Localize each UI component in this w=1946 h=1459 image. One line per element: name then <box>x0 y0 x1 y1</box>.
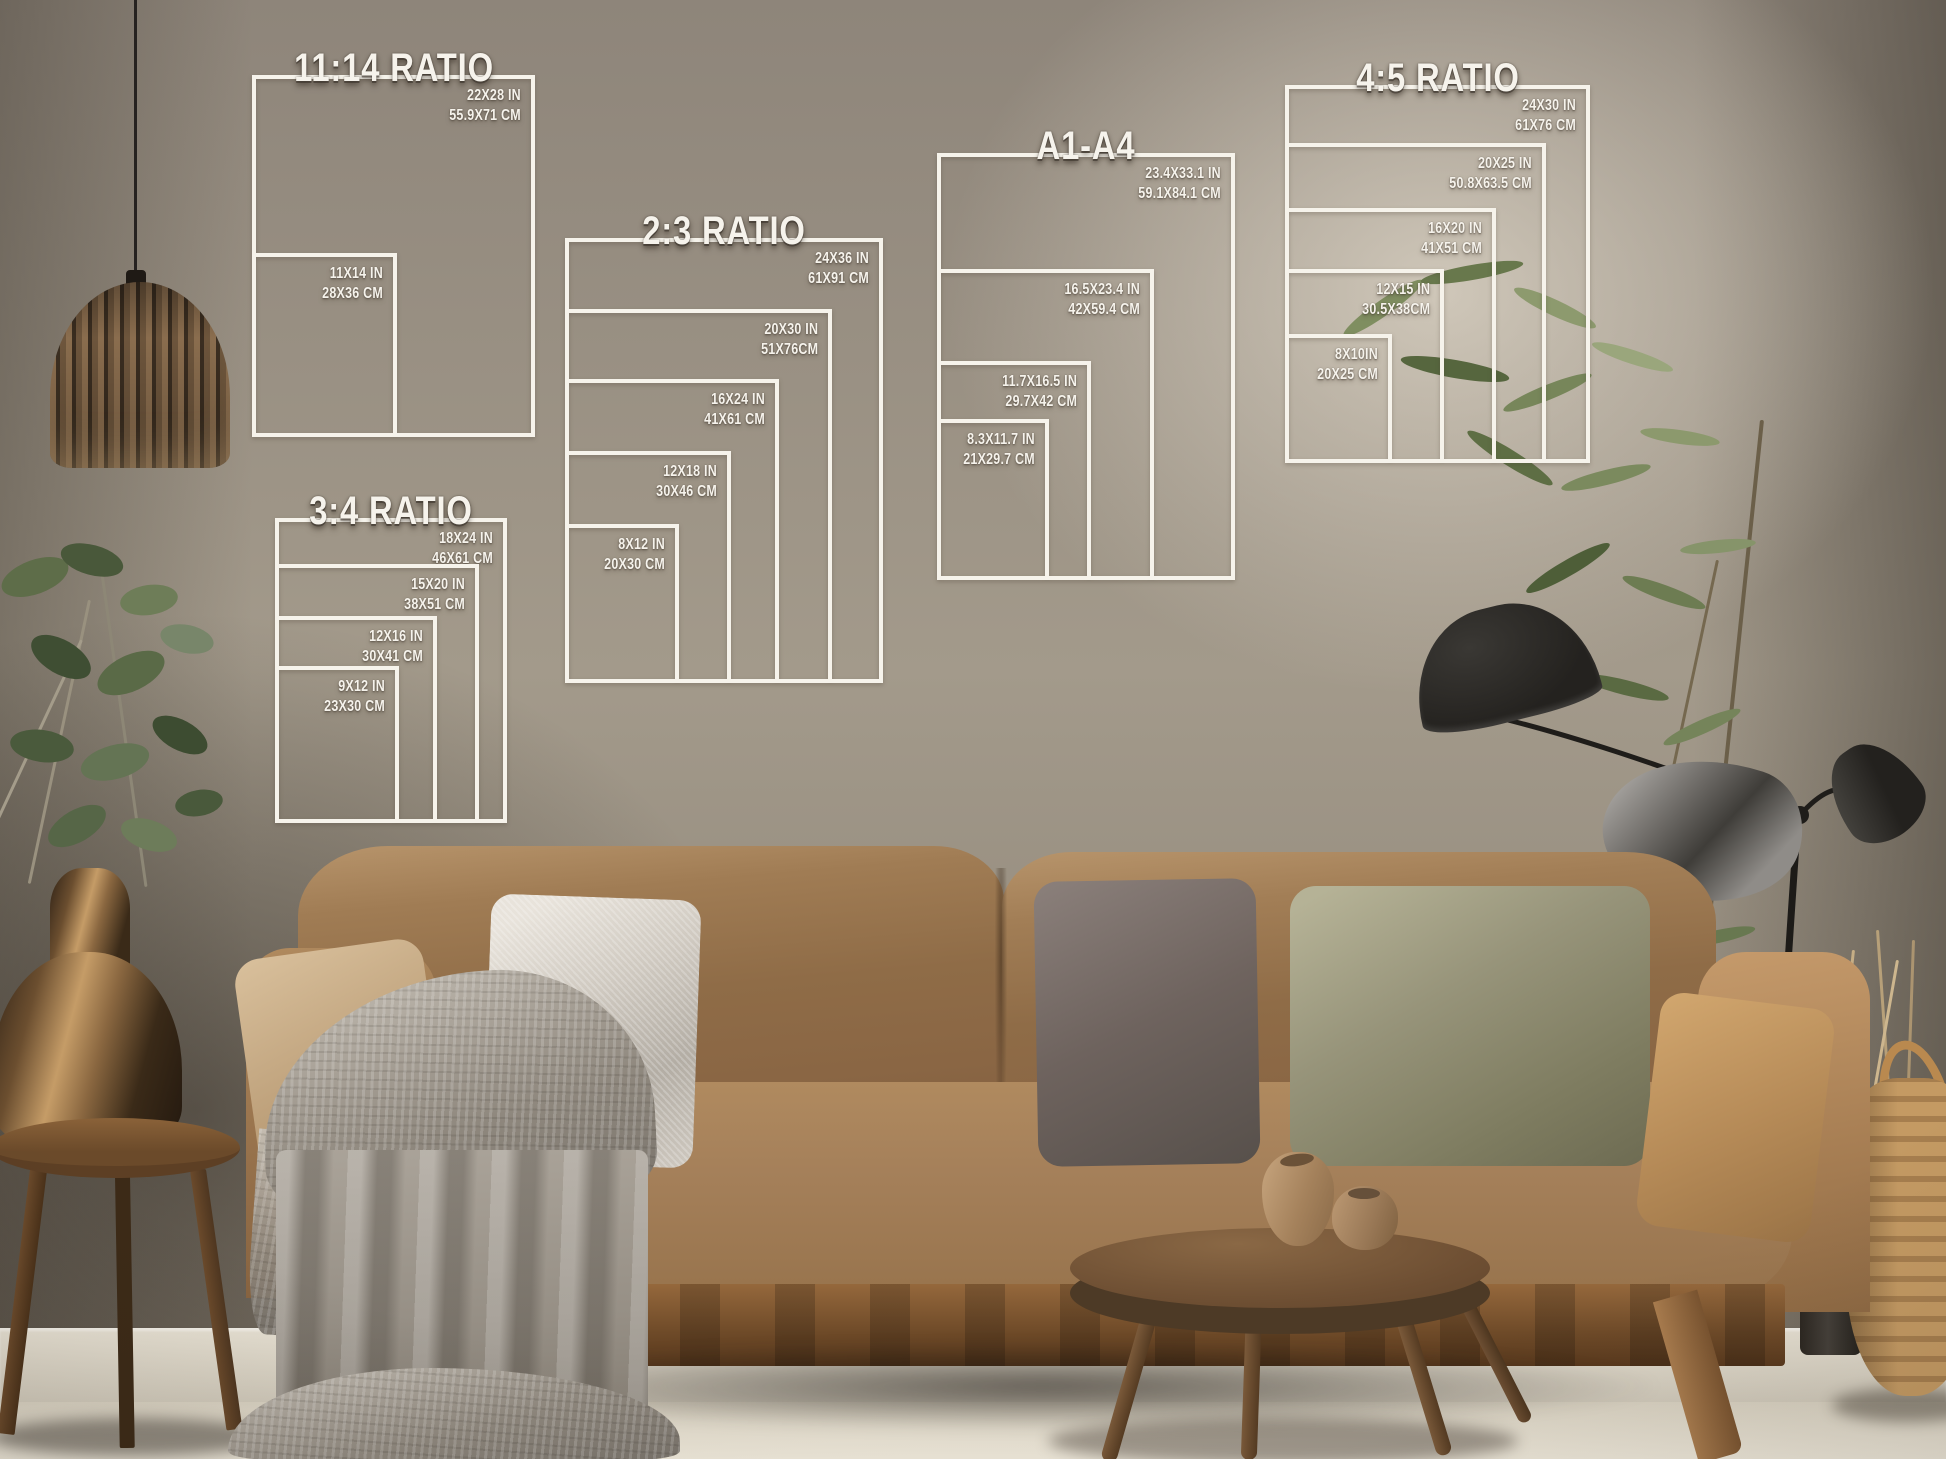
pillow-tan <box>232 936 454 1205</box>
pillow-camel <box>1634 990 1836 1245</box>
living-room-scene: 11:14 RATIO 22X28 IN 55.9X71 CM 11X14 IN… <box>0 0 1946 1459</box>
table-shadow <box>1048 1418 1518 1459</box>
pillow-sage <box>1290 886 1650 1166</box>
pillow-silver <box>482 893 701 1168</box>
pillow-dark-gray <box>1034 878 1261 1167</box>
floor-lamp-arms <box>0 0 1946 1459</box>
